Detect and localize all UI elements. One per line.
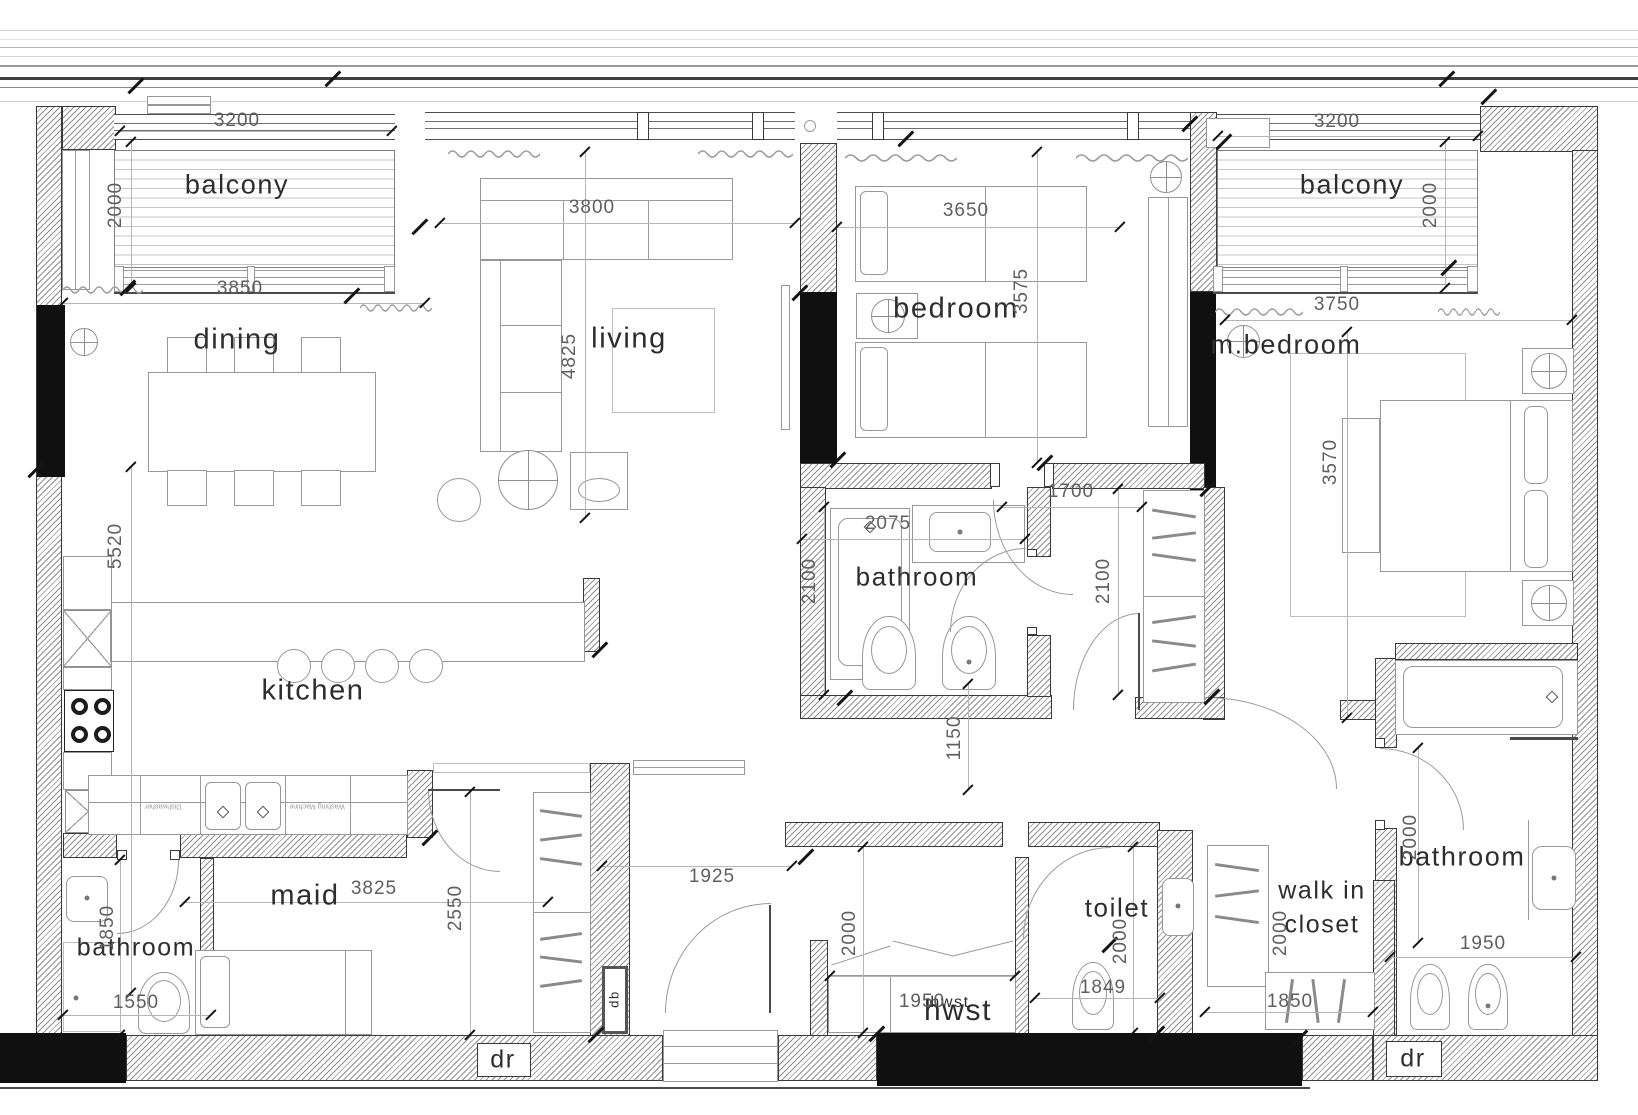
wall-living-bedroom <box>800 143 837 293</box>
wall-walkin-east <box>1373 880 1395 1036</box>
dining-table <box>148 372 376 472</box>
dim-hwst-height: 2000 <box>839 910 861 956</box>
dim-line <box>1390 957 1576 958</box>
wall-exterior-left <box>36 106 62 1036</box>
room-label-balcony-right: balcony <box>1300 170 1404 201</box>
rail-post <box>1213 266 1223 292</box>
wall-corner-top-left <box>62 106 116 150</box>
dim-toilet-height: 2000 <box>1110 918 1132 964</box>
threshold-line <box>663 1046 778 1047</box>
dim-toilet-width: 1849 <box>1080 977 1126 999</box>
corner-window-right <box>1206 118 1270 148</box>
door-arc-entry <box>665 903 771 1013</box>
door-jamb <box>1027 627 1037 635</box>
window-mullion <box>872 112 884 140</box>
pillow <box>860 191 888 275</box>
blanket-line <box>345 950 346 1035</box>
dim-mbedroom-width: 3750 <box>1314 294 1360 316</box>
washing-machine-label: Washing Machine <box>289 803 344 810</box>
armchair-round <box>437 478 481 522</box>
dim-bathmid-height: 2100 <box>799 558 821 604</box>
burner <box>94 698 111 715</box>
room-label-mbedroom: m.bedroom <box>1211 330 1362 361</box>
sofa-cushion-line <box>648 200 649 260</box>
facade-line <box>0 39 1638 40</box>
wall-bottom-left-band <box>126 1035 663 1081</box>
wall-hall-south-left <box>785 822 1003 847</box>
label-dr-left: dr <box>490 1046 515 1075</box>
window-mullion <box>637 112 649 140</box>
burner <box>94 726 111 743</box>
dim-line <box>830 976 1015 977</box>
label-db: db <box>607 990 622 1008</box>
cabinet-x <box>63 610 112 667</box>
dim-line <box>440 223 795 224</box>
room-label-walkin-2: closet <box>1285 911 1360 940</box>
door-jamb <box>990 463 1000 487</box>
dim-balcony-left-depth: 2000 <box>105 182 127 228</box>
corner-window-left <box>147 96 211 105</box>
column-living-bedroom <box>800 292 837 488</box>
dim-walkin-width: 1850 <box>1267 991 1313 1013</box>
island-end-pier <box>583 578 600 652</box>
door-jamb <box>1375 820 1385 830</box>
facade-line <box>0 101 1638 102</box>
dining-chair <box>301 470 341 506</box>
dim-bathmid-width: 2075 <box>865 513 911 535</box>
wardrobe-line <box>1168 197 1169 427</box>
lamp <box>1531 585 1567 621</box>
facade-line <box>0 30 1638 31</box>
faucet-dot <box>1176 904 1181 909</box>
curtain-wave <box>845 150 957 162</box>
facade-line <box>0 47 1638 48</box>
entry-threshold <box>663 1030 778 1082</box>
toilet-bowl <box>871 626 907 674</box>
wall-hwst-toilet <box>1015 857 1029 1037</box>
door-leaf <box>428 789 500 791</box>
dim-line <box>1225 320 1572 321</box>
door-leaf <box>1138 613 1140 710</box>
dim-line <box>837 227 1120 228</box>
door-arc-bath-right <box>1380 748 1464 830</box>
dining-chair <box>234 470 274 506</box>
wall-exterior-right <box>1572 150 1598 1081</box>
dining-chair <box>301 337 341 373</box>
dim-line <box>802 539 1025 540</box>
dim-line <box>63 303 425 304</box>
dim-hall-width: 1925 <box>689 866 735 888</box>
rail-post <box>384 266 395 292</box>
curtain-wave <box>448 146 540 158</box>
dim-line <box>1133 847 1134 1033</box>
blanket-line <box>985 342 986 438</box>
bottom-edge-line <box>0 1087 1310 1089</box>
dim-hwst-width: 1950 <box>899 991 945 1013</box>
dim-bathright-width: 1950 <box>1460 933 1506 955</box>
cabinet-door-mark <box>953 941 1013 957</box>
window-living <box>425 112 795 140</box>
room-label-bathroom-mid: bathroom <box>856 562 979 593</box>
shower-screen <box>1510 737 1578 740</box>
dim-balcony-right-depth: 2000 <box>1420 182 1442 228</box>
wall-tick <box>411 218 428 235</box>
toilet-bowl <box>1417 973 1443 1015</box>
cabinet-divider <box>890 975 891 1033</box>
wall-kitchen-south-a <box>63 833 117 858</box>
wall-bottom-mid-band <box>778 1035 877 1081</box>
bidet-dot <box>1486 1004 1491 1009</box>
facade-line <box>0 87 1638 88</box>
dim-line <box>1037 152 1038 463</box>
wall-bathmid-east-bottom <box>1027 635 1051 697</box>
sofa-top <box>480 178 733 260</box>
dim-bedroom-width: 3650 <box>943 200 989 222</box>
dim-line <box>1218 136 1478 137</box>
wall-bedroom-south-left <box>800 463 992 489</box>
door-arc-walkin <box>1205 697 1337 789</box>
sofa-cushion-line <box>500 325 562 326</box>
wall-bathright-north <box>1395 643 1578 660</box>
door-jamb <box>170 850 180 860</box>
counter-divider <box>140 775 141 835</box>
bidet-bowl <box>1475 973 1501 1015</box>
threshold-line <box>663 1063 778 1064</box>
sofa-cushion-line <box>500 392 562 393</box>
faucet-dot <box>958 530 963 535</box>
bidet-bowl <box>951 626 987 674</box>
faucet-dot <box>85 896 90 901</box>
lobby-top-edge <box>433 763 590 773</box>
bar-stool <box>365 649 399 683</box>
burner <box>71 698 88 715</box>
facade-line <box>0 65 1638 67</box>
pillow <box>1524 490 1548 568</box>
dim-line <box>185 902 548 903</box>
dim-kitchen-height: 5520 <box>105 523 127 569</box>
window-jamb-left <box>62 150 90 290</box>
column-bedroom-mbedroom <box>1190 292 1216 490</box>
console-line <box>633 767 745 768</box>
wall-tick <box>797 848 814 865</box>
counter-divider <box>285 775 286 835</box>
dim-bathright-height: 2000 <box>1400 814 1422 860</box>
dim-closet-height: 2100 <box>1093 558 1115 604</box>
room-label-maid: maid <box>270 880 339 913</box>
dim-line <box>131 142 132 288</box>
tall-cabinet <box>63 667 112 690</box>
corner-window-left <box>147 105 211 114</box>
lamp <box>1150 161 1182 193</box>
room-label-balcony-left: balcony <box>185 170 289 201</box>
door-leaf <box>769 905 771 1013</box>
dim-balcony-left-width: 3200 <box>214 110 260 132</box>
wall-tick <box>1480 88 1497 105</box>
room-label-bedroom: bedroom <box>893 293 1019 326</box>
dim-bedroom-height: 3575 <box>1011 268 1033 314</box>
door-arc-bath-left <box>117 860 179 934</box>
faucet-dot <box>1552 876 1557 881</box>
facade-line <box>0 77 1638 80</box>
dim-line <box>131 467 132 993</box>
door-jamb <box>1375 738 1385 748</box>
window-mullion <box>752 112 764 140</box>
sofa-back-line <box>500 260 501 452</box>
pillow <box>200 956 230 1028</box>
bar-stool <box>409 649 443 683</box>
door-jamb <box>1027 549 1037 557</box>
dim-line <box>863 847 864 1033</box>
column-marker <box>70 328 98 356</box>
cabinet-door-mark <box>893 941 953 957</box>
dim-dining-width: 3850 <box>217 278 263 300</box>
side-table <box>498 450 558 510</box>
wall-corner-top-right <box>1480 106 1598 152</box>
dim-closet-width: 1700 <box>1048 481 1094 503</box>
counter-divider <box>200 775 201 835</box>
curtain-wave <box>1438 304 1500 316</box>
floor-plan: Dishwasher Washing Machine <box>0 0 1638 1115</box>
column-bottom-left <box>0 1033 126 1083</box>
column-left-wall <box>37 305 65 477</box>
dim-line <box>63 1015 211 1016</box>
wall-closet-east <box>1203 487 1225 720</box>
dim-line <box>1445 142 1446 288</box>
door-arc-mbedroom <box>1073 613 1140 710</box>
dim-maid-height: 2550 <box>445 885 467 931</box>
curtain-wave <box>1076 150 1188 162</box>
counter-line <box>1528 820 1529 920</box>
pillow <box>1524 406 1548 484</box>
dim-maid-width: 3825 <box>351 878 397 900</box>
room-label-kitchen: kitchen <box>261 675 364 708</box>
counter-divider <box>350 775 351 835</box>
dim-bathleft-height: 1850 <box>97 905 119 951</box>
sofa-left <box>480 260 562 452</box>
room-label-bathroom-left: bathroom <box>77 934 195 963</box>
shower-drain <box>74 996 79 1001</box>
bathtub-inner <box>1403 666 1563 728</box>
wall-toilet-north <box>1028 822 1160 847</box>
window-pivot <box>804 120 816 132</box>
room-label-living: living <box>591 323 667 356</box>
dim-line <box>1118 489 1119 695</box>
column-bottom-center <box>877 1033 1302 1086</box>
label-dr-right: dr <box>1400 1045 1425 1074</box>
dim-line <box>968 684 969 790</box>
rail-post <box>1340 266 1348 292</box>
dim-living-width: 3800 <box>569 197 615 219</box>
window-mullion <box>1127 112 1139 140</box>
facade-line <box>0 56 1638 57</box>
bidet-dot <box>967 660 972 665</box>
wall-bottom-band-c <box>1302 1035 1373 1081</box>
sofa-cushion-line <box>563 200 564 260</box>
dim-bathleft-width: 1550 <box>113 992 159 1014</box>
dim-living-height: 4825 <box>559 333 581 379</box>
room-label-walkin-1: walk in <box>1278 877 1366 906</box>
curtain-wave <box>698 146 793 158</box>
wardrobe-shelf <box>533 912 591 913</box>
wall-kitchen-south-b <box>180 833 407 858</box>
dim-corridor-width: 1150 <box>944 716 966 761</box>
dishwasher-label: Dishwasher <box>145 803 182 810</box>
pillow <box>860 347 888 431</box>
burner <box>71 726 88 743</box>
room-label-dining: dining <box>194 324 281 357</box>
balcony-left-deck <box>114 150 395 268</box>
dim-line <box>1002 507 1142 508</box>
dim-walkin-height: 2000 <box>1270 910 1292 956</box>
tv-panel <box>781 285 790 430</box>
wall-bathright-west-top <box>1375 658 1397 748</box>
lamp <box>1531 353 1567 389</box>
wall-bathmid-south <box>800 695 1052 719</box>
blanket-line <box>1510 400 1511 572</box>
bed-twin <box>855 342 1087 438</box>
dim-line <box>1347 332 1348 718</box>
dim-mbedroom-height: 3570 <box>1320 439 1342 485</box>
rail-post <box>1467 266 1478 292</box>
dim-balcony-right-width: 3200 <box>1314 111 1360 133</box>
wall-hwst-west <box>810 940 828 1036</box>
dining-chair <box>167 470 207 506</box>
dim-line <box>824 507 825 695</box>
window-jamb-line <box>75 150 76 290</box>
closet-shelf-line <box>1143 596 1205 597</box>
dim-line <box>470 792 471 1035</box>
